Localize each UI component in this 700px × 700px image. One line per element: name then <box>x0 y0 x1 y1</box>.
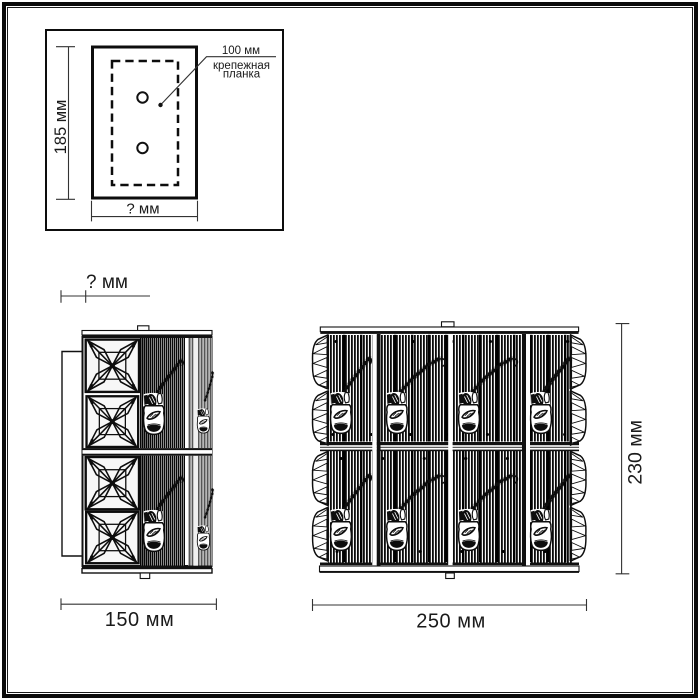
svg-text:230 мм: 230 мм <box>624 420 646 485</box>
svg-text:? мм: ? мм <box>86 272 128 293</box>
svg-text:150 мм: 150 мм <box>105 609 174 631</box>
svg-text:185 мм: 185 мм <box>52 100 70 155</box>
svg-text:100 мм: 100 мм <box>222 45 260 57</box>
svg-text:250 мм: 250 мм <box>416 611 485 633</box>
svg-text:? мм: ? мм <box>126 201 159 218</box>
svg-text:планка: планка <box>223 69 261 81</box>
